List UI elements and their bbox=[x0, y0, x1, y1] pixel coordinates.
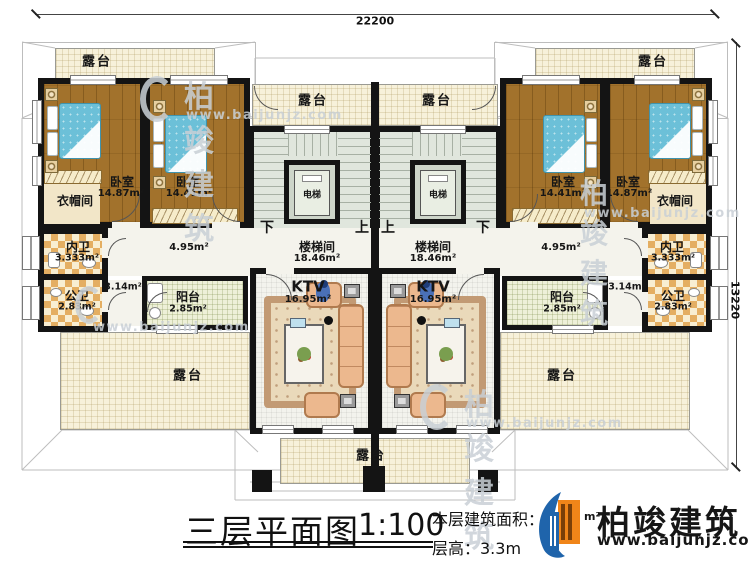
room-area: 2.83m² bbox=[58, 302, 96, 312]
terrace-bottom-left bbox=[60, 332, 250, 430]
armchair bbox=[304, 392, 340, 418]
window bbox=[32, 100, 42, 144]
sofa bbox=[386, 304, 412, 388]
window bbox=[708, 156, 718, 186]
terrace-bottom-right bbox=[500, 332, 690, 430]
room-area: 14.87m² bbox=[98, 189, 144, 199]
stair-direction-up: 上 bbox=[355, 221, 369, 235]
room-label-terrace: 露台 bbox=[298, 95, 328, 108]
room-area: 14.87m² bbox=[606, 189, 652, 199]
bed-pillow bbox=[153, 144, 164, 168]
room-area: 16.95m² bbox=[410, 295, 456, 305]
nightstand bbox=[153, 100, 166, 113]
stool bbox=[324, 316, 333, 325]
nightstand bbox=[45, 160, 58, 173]
window bbox=[456, 425, 488, 434]
room-label-cloakroom: 衣帽间 bbox=[657, 195, 693, 207]
room-label-bedroom: 卧室 bbox=[110, 176, 134, 188]
room-label-elevator: 电梯 bbox=[429, 192, 447, 201]
room-label-stairwell: 楼梯间 bbox=[299, 241, 335, 253]
stairs bbox=[338, 138, 372, 220]
door-opening bbox=[510, 222, 538, 228]
company-logo-icon bbox=[531, 486, 591, 562]
wall-segment bbox=[140, 84, 150, 224]
room-label-ktv: KTV bbox=[416, 280, 449, 295]
room-label-terrace: 露台 bbox=[82, 56, 112, 69]
toilet bbox=[50, 288, 62, 297]
window bbox=[420, 125, 466, 134]
room-area: 18.46m² bbox=[410, 254, 456, 264]
speaker bbox=[390, 284, 406, 298]
bed bbox=[543, 115, 585, 173]
bed-pillow bbox=[47, 106, 58, 130]
bed-pillow bbox=[586, 118, 597, 142]
karaoke-console bbox=[290, 318, 306, 328]
nightstand bbox=[584, 100, 597, 113]
dimension-line-right bbox=[736, 42, 737, 468]
speaker bbox=[340, 394, 356, 408]
bed-pillow bbox=[692, 132, 703, 156]
room-area: 4.95m² bbox=[541, 243, 580, 253]
room-label-bedroom: 卧室 bbox=[176, 176, 200, 188]
bay-window bbox=[710, 236, 728, 270]
nightstand bbox=[45, 88, 58, 101]
room-label-stairwell: 楼梯间 bbox=[415, 241, 451, 253]
table-flowers bbox=[297, 347, 311, 361]
pillar bbox=[252, 470, 272, 492]
window bbox=[552, 325, 594, 334]
room-area: 2.85m² bbox=[543, 304, 581, 314]
room-area: 4.95m² bbox=[169, 243, 208, 253]
room-area: 18.46m² bbox=[294, 254, 340, 264]
bed bbox=[59, 103, 101, 159]
stairs bbox=[288, 132, 338, 156]
room-area: 3.14m² bbox=[104, 282, 142, 292]
nightstand bbox=[584, 176, 597, 189]
room-area: 3.14m² bbox=[608, 282, 646, 292]
title-underline bbox=[183, 541, 433, 543]
door-opening bbox=[266, 268, 294, 274]
pillar bbox=[363, 466, 385, 492]
bed-pillow bbox=[153, 118, 164, 142]
room-area: 14.41m² bbox=[166, 189, 212, 199]
window bbox=[396, 425, 428, 434]
window bbox=[522, 75, 580, 85]
room-area: 3.333m² bbox=[651, 253, 695, 263]
window bbox=[262, 425, 294, 434]
elevator-panel bbox=[302, 175, 322, 182]
door-opening bbox=[112, 222, 140, 228]
pillar bbox=[478, 470, 498, 492]
door-opening bbox=[610, 222, 638, 228]
room-area: 2.85m² bbox=[169, 304, 207, 314]
bed-pillow bbox=[47, 132, 58, 156]
door-opening bbox=[642, 292, 648, 312]
stair-direction-up: 上 bbox=[381, 221, 395, 235]
bed-pillow bbox=[586, 144, 597, 168]
room-label-public-bath: 公卫 bbox=[661, 290, 685, 302]
room-label-terrace: 露台 bbox=[422, 95, 452, 108]
door-opening bbox=[212, 222, 240, 228]
window bbox=[32, 156, 42, 186]
dimension-width: 22200 bbox=[356, 16, 394, 27]
window bbox=[156, 325, 198, 334]
dimension-height: 13220 bbox=[730, 281, 741, 319]
stairs bbox=[412, 132, 462, 156]
room-label-balcony: 阳台 bbox=[550, 291, 574, 303]
floor-area-label: 本层建筑面积： bbox=[432, 510, 544, 529]
window bbox=[284, 125, 330, 134]
window bbox=[634, 75, 680, 85]
nightstand bbox=[692, 88, 705, 101]
bed-pillow bbox=[692, 106, 703, 130]
company-website: www.baijunjz.com bbox=[597, 531, 750, 549]
bay-window bbox=[22, 286, 40, 320]
room-label-terrace: 露台 bbox=[173, 370, 203, 383]
room-label-public-bath: 公卫 bbox=[65, 290, 89, 302]
sofa bbox=[338, 304, 364, 388]
window bbox=[708, 100, 718, 144]
stairs bbox=[254, 138, 288, 220]
room-label-ktv: KTV bbox=[291, 280, 324, 295]
party-wall bbox=[371, 82, 379, 466]
door-opening bbox=[642, 238, 648, 258]
nightstand bbox=[153, 176, 166, 189]
room-area: 16.95m² bbox=[285, 295, 331, 305]
speaker bbox=[344, 284, 360, 298]
floor-height-line: 层高：3.3m bbox=[432, 535, 521, 559]
room-area: 14.41m² bbox=[540, 189, 586, 199]
room-area: 2.83m² bbox=[654, 302, 692, 312]
speaker bbox=[394, 394, 410, 408]
wall-segment bbox=[600, 84, 610, 224]
nightstand bbox=[692, 160, 705, 173]
window bbox=[322, 425, 354, 434]
room-label-terrace: 露台 bbox=[547, 370, 577, 383]
stairs bbox=[378, 138, 412, 220]
room-label-terrace: 露台 bbox=[356, 450, 386, 463]
door-opening bbox=[456, 268, 484, 274]
stairs bbox=[462, 138, 496, 220]
title-underline bbox=[183, 546, 433, 548]
table-flowers bbox=[439, 347, 453, 361]
stair-direction-down: 下 bbox=[260, 221, 274, 235]
bed bbox=[165, 115, 207, 173]
window bbox=[70, 75, 116, 85]
window bbox=[170, 75, 228, 85]
room-label-elevator: 电梯 bbox=[303, 192, 321, 201]
elevator-panel bbox=[428, 175, 448, 182]
room-label-bedroom: 卧室 bbox=[551, 176, 575, 188]
room-label-cloakroom: 衣帽间 bbox=[57, 195, 93, 207]
karaoke-console bbox=[444, 318, 460, 328]
room-label-terrace: 露台 bbox=[638, 56, 668, 69]
toilet bbox=[688, 288, 700, 297]
room-label-bedroom: 卧室 bbox=[616, 176, 640, 188]
stool bbox=[417, 316, 426, 325]
bay-window bbox=[710, 286, 728, 320]
stair-direction-down: 下 bbox=[476, 221, 490, 235]
armchair bbox=[410, 392, 446, 418]
floor-plan: 露台 露台 露台 露台 露台 露台 露台 卧室 14.87m² 卧室 14.41… bbox=[0, 0, 750, 562]
room-label-balcony: 阳台 bbox=[176, 291, 200, 303]
bed bbox=[649, 103, 691, 159]
bay-window bbox=[22, 236, 40, 270]
room-area: 3.333m² bbox=[55, 253, 99, 263]
room-label-inner-bath: 内卫 bbox=[66, 241, 90, 253]
room-label-inner-bath: 内卫 bbox=[660, 241, 684, 253]
